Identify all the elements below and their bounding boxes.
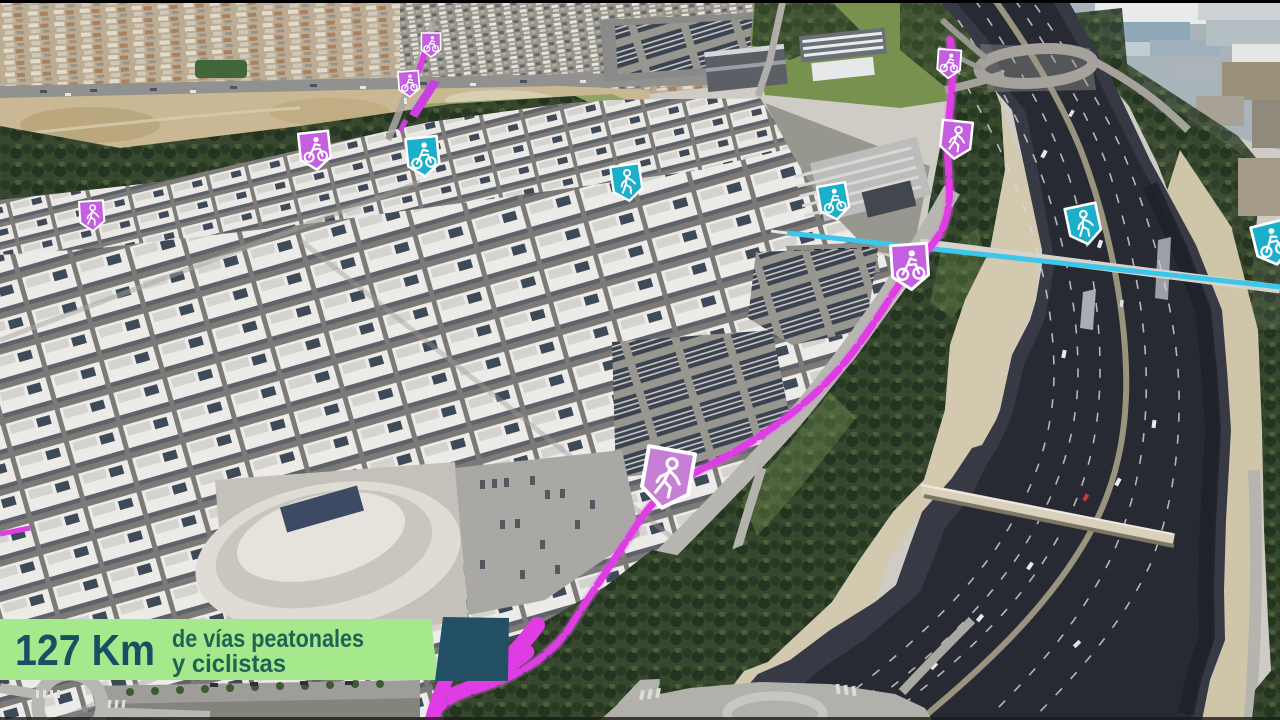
- svg-text:de vías peatonales: de vías peatonales: [172, 625, 364, 653]
- svg-text:y ciclistas: y ciclistas: [172, 650, 286, 678]
- svg-text:127 Km: 127 Km: [15, 626, 155, 675]
